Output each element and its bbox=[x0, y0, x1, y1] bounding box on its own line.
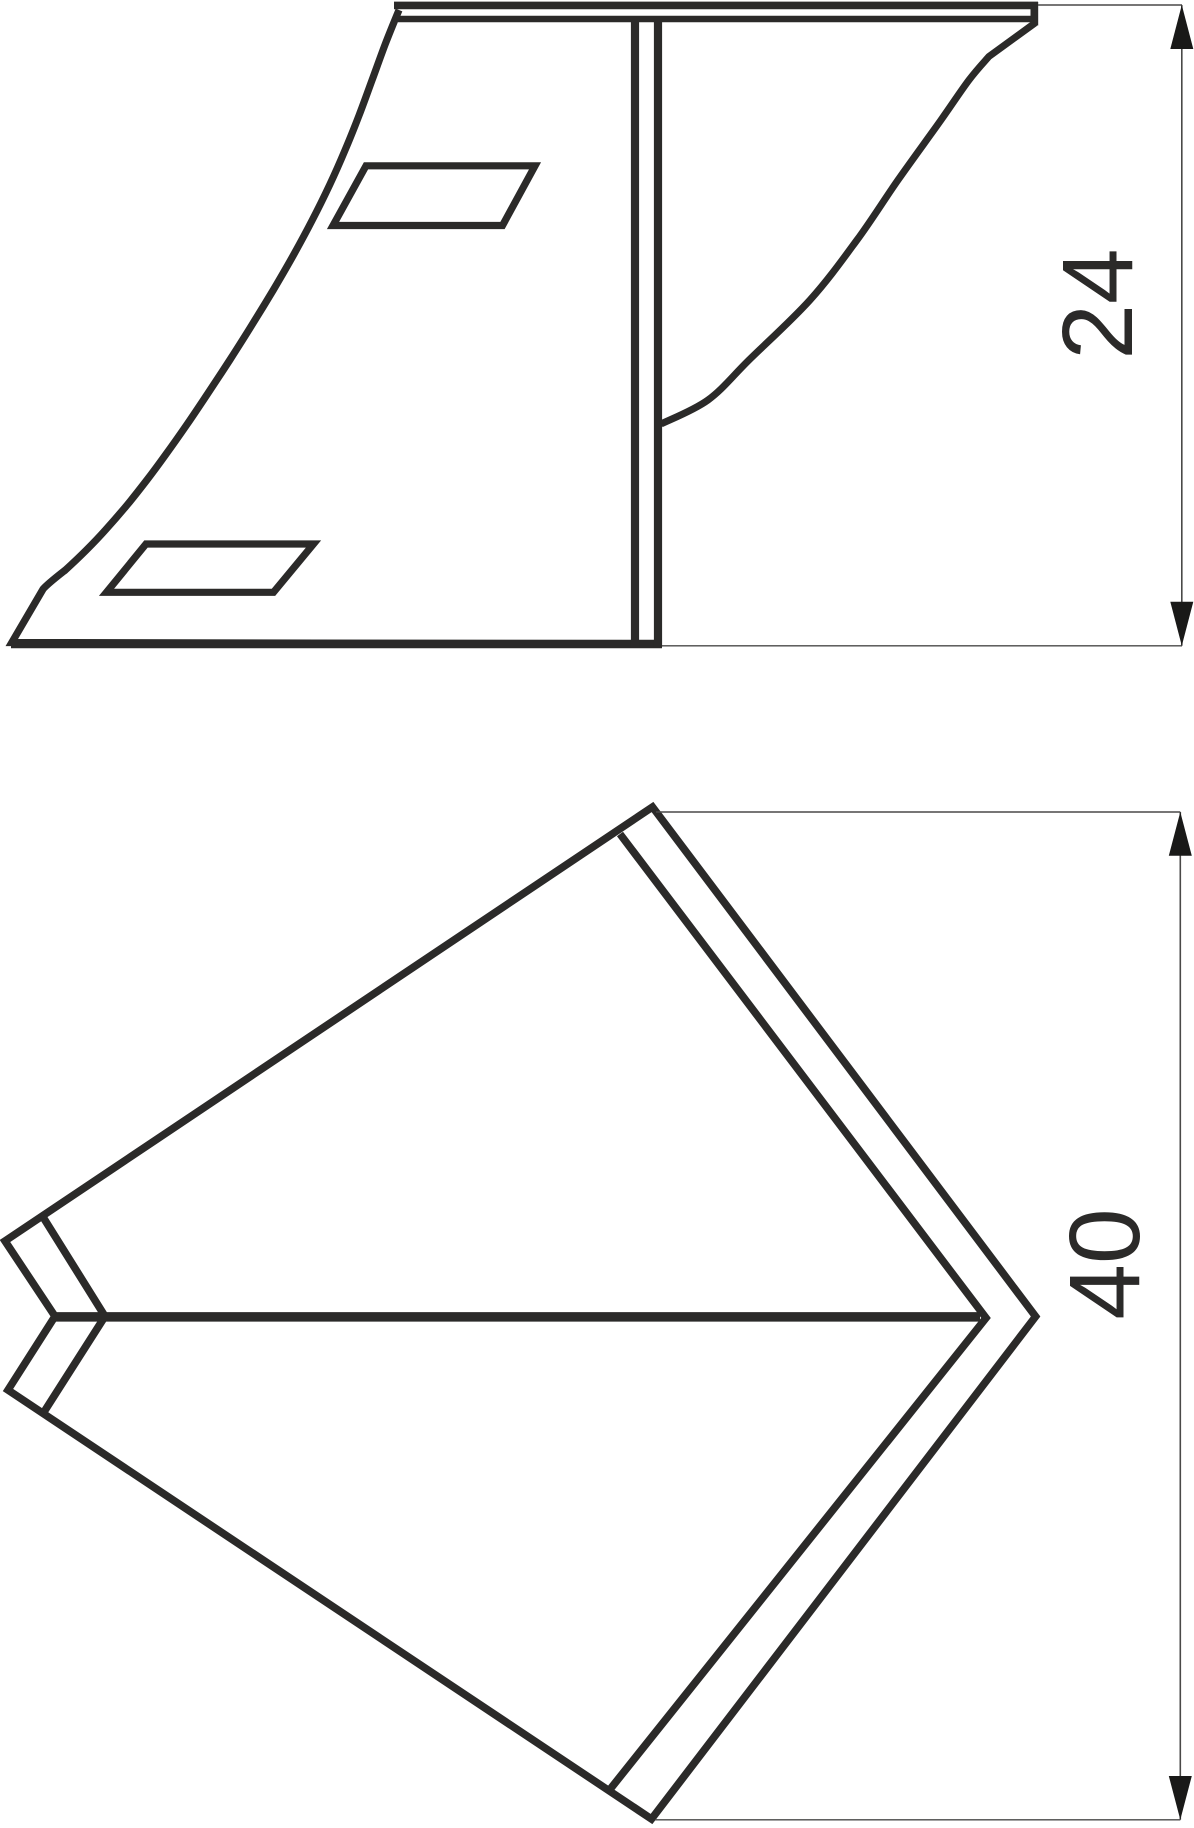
svg-text:24: 24 bbox=[1042, 248, 1154, 359]
svg-text:40: 40 bbox=[1049, 1208, 1161, 1319]
